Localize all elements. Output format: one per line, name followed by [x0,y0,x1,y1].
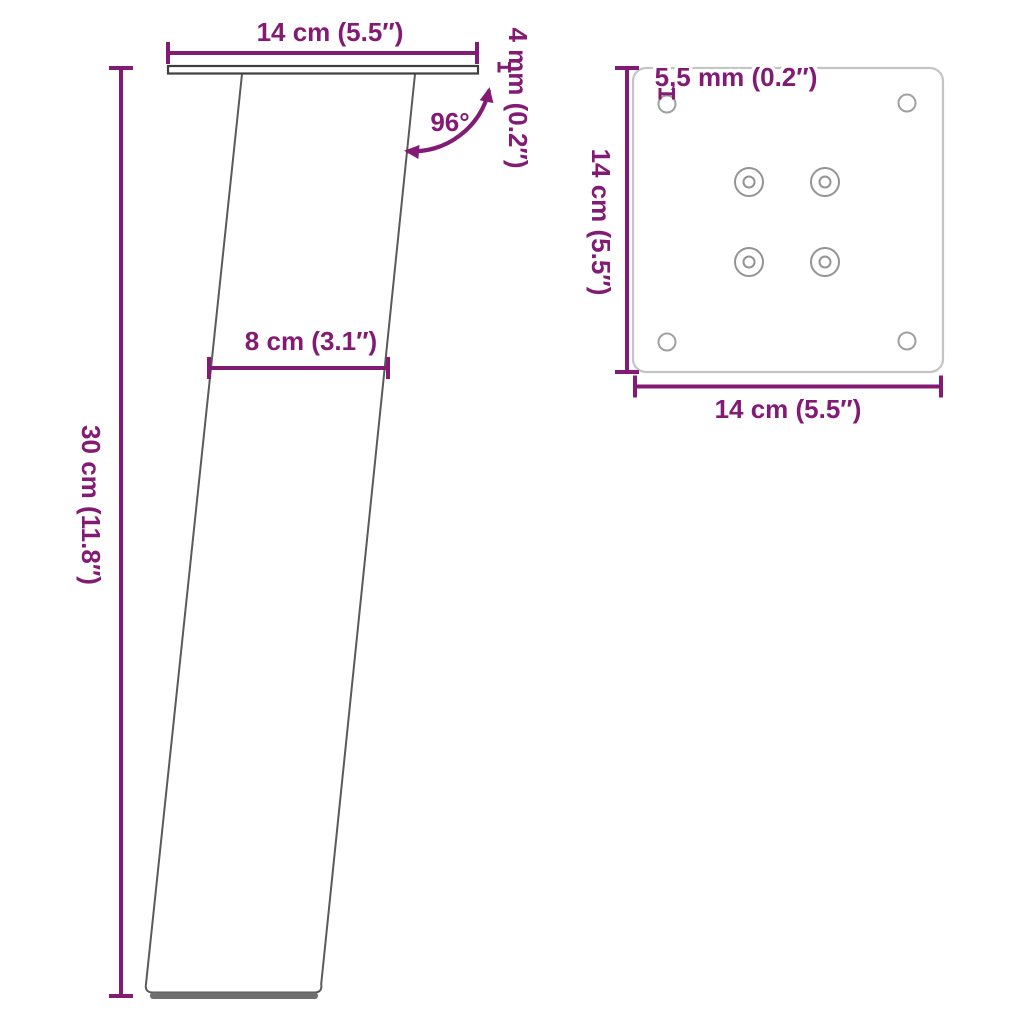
hole-diameter-label: 5,5 mm (0.2″) [655,62,818,92]
top-width-dimension: 14 cm (5.5″) [168,17,477,64]
leg-profile [146,74,415,993]
leg-foot [150,993,318,1000]
corner-hole-bottom-right [899,333,916,350]
height-label: 30 cm (11.8″) [76,425,106,585]
angle-dimension: 96° [407,90,489,151]
thickness-dimension: 4 mm (0.2″) [499,27,533,168]
mid-width-label: 8 cm (3.1″) [245,326,377,356]
plate-width-label: 14 cm (5.5″) [715,394,862,424]
top-view: 5,5 mm (0.2″) 14 cm (5.5″) 14 cm (5.5″) [586,62,943,424]
diagram-canvas: 30 cm (11.8″) 14 cm (5.5″) 4 mm (0.2″) [0,0,1024,1024]
plate-depth-label: 14 cm (5.5″) [586,149,616,296]
height-dimension: 30 cm (11.8″) [76,68,133,996]
top-width-label: 14 cm (5.5″) [257,17,404,47]
plate-depth-dimension: 14 cm (5.5″) [586,68,639,372]
mounting-plate-side [168,66,478,74]
diagram-page: 30 cm (11.8″) 14 cm (5.5″) 4 mm (0.2″) [0,0,1024,1024]
mounting-plate-top [633,68,943,372]
thickness-label: 4 mm (0.2″) [503,27,533,168]
plate-width-dimension: 14 cm (5.5″) [635,376,941,425]
corner-hole-bottom-left [659,334,676,351]
angle-arc-lower [407,136,460,152]
corner-hole-top-right [899,95,916,112]
side-view: 30 cm (11.8″) 14 cm (5.5″) 4 mm (0.2″) [76,17,533,999]
angle-label: 96° [430,107,469,137]
